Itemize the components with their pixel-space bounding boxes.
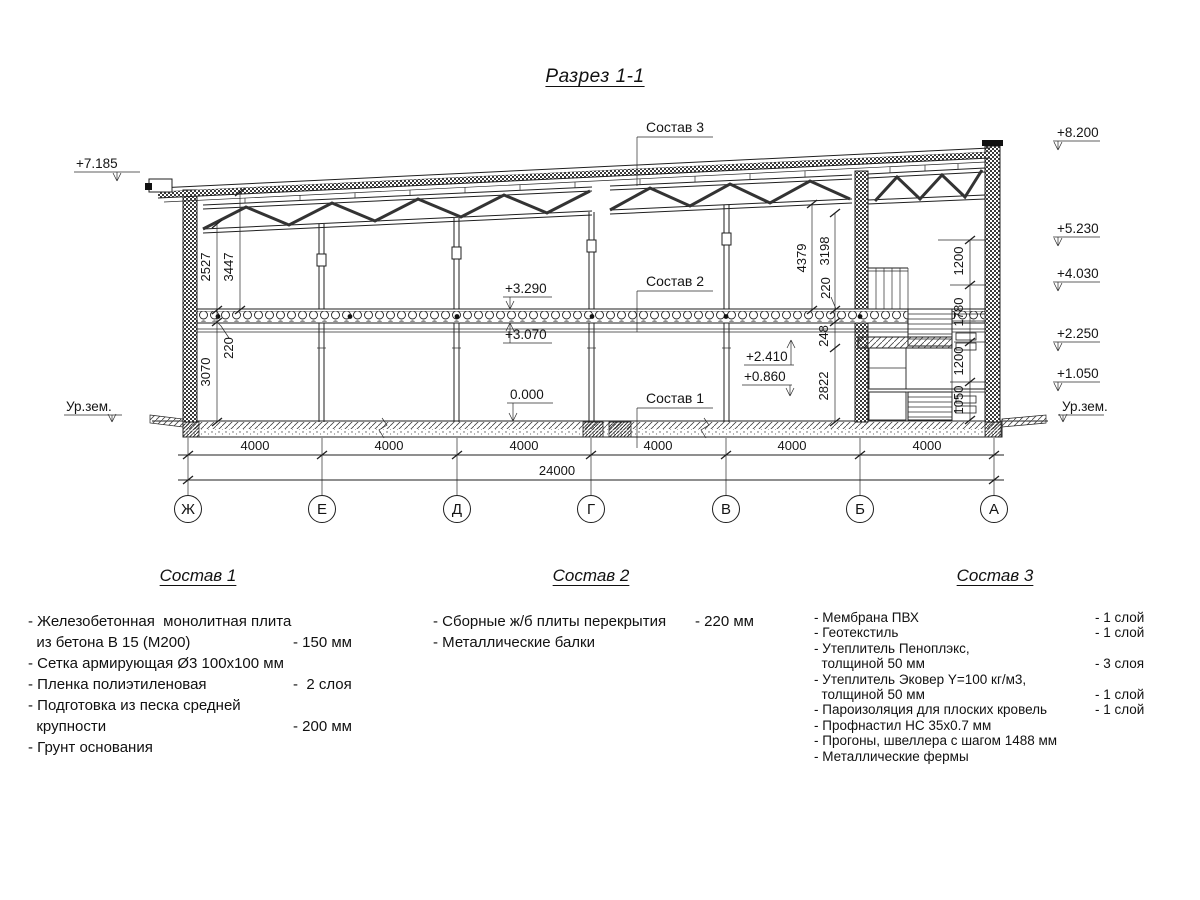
legend-sostav-3: Состав 3 - Мембрана ПВХ- 1 слой - Геотек… [814,566,1176,764]
legend-item-text: - Профнастил НС 35x0.7 мм [814,718,991,733]
legend-item-text: толщиной 50 мм [814,687,925,702]
legend-item-text: - Грунт основания [28,739,153,756]
dim-bay-6: 4000 [913,438,942,453]
legend-sostav-2: Состав 2 - Сборные ж/б плиты перекрытия-… [433,566,749,655]
legend-item: - Металлические фермы [814,749,1176,764]
legend-item: - Сетка армирующая Ø3 100x100 мм [28,655,368,676]
legend-item-value: - 1 слой [1095,625,1144,640]
dim-248: 248 [816,325,831,347]
legend-item-text: - Пленка полиэтиленовая [28,676,207,693]
axis-label-e: Е [317,501,327,518]
dim-3198: 3198 [817,237,832,266]
level-right-1: +8.200 [1057,125,1099,140]
level-left-top: +7.185 [76,156,118,171]
legend-item: - Сборные ж/б плиты перекрытия- 220 мм [433,613,749,634]
level-stair-down: +0.860 [744,369,786,384]
level-right-3: +4.030 [1057,266,1099,281]
dim-3447: 3447 [221,253,236,282]
dim-2527: 2527 [198,253,213,282]
level-right-5: +1.050 [1057,366,1099,381]
legend-item: - Пленка полиэтиленовая- 2 слоя [28,676,368,697]
legend-item-text: - Пароизоляция для плоских кровель [814,702,1047,717]
dim-bay-1: 4000 [241,438,270,453]
level-ground-right: Ур.зем. [1062,399,1108,414]
legend-item-text: - Металлические фермы [814,749,969,764]
level-stair-up: +2.410 [746,349,788,364]
dim-1780: 1780 [951,298,966,327]
legend-item-value: - 220 мм [695,613,754,630]
axis-label-g: Г [587,501,595,518]
legend-item-value: - 200 мм [293,718,352,735]
legend-item: - Утеплитель Эковер Y=100 кг/м3, [814,672,1176,687]
legend-item: - Грунт основания [28,739,368,760]
dim-1200-a: 1200 [951,247,966,276]
legend-item: - Металлические балки [433,634,749,655]
elevation-marks-left: +7.185 Ур.зем. [64,156,140,422]
dim-bay-2: 4000 [375,438,404,453]
legend-item: толщиной 50 мм- 3 слоя [814,656,1176,671]
left-wall [183,190,197,422]
legend-2-title: Состав 2 [433,566,749,586]
legend-3-title: Состав 3 [814,566,1176,586]
legend-item-text: - Утеплитель Эковер Y=100 кг/м3, [814,672,1026,687]
legend-item-text: - Прогоны, швеллера с шагом 1488 мм [814,733,1057,748]
legend-item-text: - Железобетонная монолитная плита [28,613,291,630]
legend-item-text: толщиной 50 мм [814,656,925,671]
dim-2822: 2822 [816,372,831,401]
leader-sostav-3: Состав 3 [646,119,704,135]
axis-label-b: Б [855,501,865,518]
legend-item-text: - Сетка армирующая Ø3 100x100 мм [28,655,284,672]
dim-bay-4: 4000 [644,438,673,453]
legend-item: из бетона В 15 (М200)- 150 мм [28,634,368,655]
legend-item-text: крупности [28,718,106,735]
dimensions-bottom: 4000 4000 4000 4000 4000 4000 24000 [178,438,1004,496]
truss-2 [610,171,852,214]
legend-item: - Пароизоляция для плоских кровель- 1 сл… [814,702,1176,717]
level-floor: 0.000 [510,387,544,402]
legend-item-text: - Утеплитель Пеноплэкс, [814,641,970,656]
dims-left: 2527 3447 220 3070 [198,188,245,426]
leader-sostav-1: Состав 1 [646,390,704,406]
legend-sostav-1: Состав 1 - Железобетонная монолитная пли… [28,566,368,760]
level-right-2: +5.230 [1057,221,1099,236]
leader-sostav-2: Состав 2 [646,273,704,289]
right-wall [982,140,1003,422]
elevation-marks-right: +8.200 +5.230 +4.030 +2.250 +1.050 Ур.зе… [1053,125,1108,422]
legend-item: толщиной 50 мм- 1 слой [814,687,1176,702]
dim-total: 24000 [539,463,575,478]
legend-item-value: - 1 слой [1095,687,1144,702]
legend-item-text: - Металлические балки [433,634,595,651]
dim-bay-5: 4000 [778,438,807,453]
legend-item-value: - 2 слоя [293,676,352,693]
legend-item-value: - 150 мм [293,634,352,651]
dim-bay-3: 4000 [510,438,539,453]
dim-4379: 4379 [794,244,809,273]
legend-item-value: - 3 слоя [1095,656,1144,671]
legend-item: - Профнастил НС 35x0.7 мм [814,718,1176,733]
legend-item-text: - Подготовка из песка средней [28,697,241,714]
axis-label-v: В [721,501,731,518]
axis-bubbles: Ж Е Д Г В Б А [175,496,1008,523]
level-slab-bottom: +3.070 [505,327,547,342]
legend-item-text: из бетона В 15 (М200) [28,634,190,651]
level-ground-left: Ур.зем. [66,399,112,414]
legend-item: крупности- 200 мм [28,718,368,739]
legend-item: - Геотекстиль- 1 слой [814,625,1176,640]
legend-item: - Железобетонная монолитная плита [28,613,368,634]
legend-item: - Подготовка из песка средней [28,697,368,718]
drawing-sheet: Разрез 1-1 [0,0,1200,900]
legend-1-title: Состав 1 [28,566,368,586]
legend-item-value: - 1 слой [1095,610,1144,625]
legend-item-text: - Геотекстиль [814,625,898,640]
legend-item: - Прогоны, швеллера с шагом 1488 мм [814,733,1176,748]
legend-item-value: - 1 слой [1095,702,1144,717]
truss-3 [868,164,985,204]
axis-b-wall [855,171,868,422]
legend-item: - Мембрана ПВХ- 1 слой [814,610,1176,625]
dim-1050: 1050 [951,386,966,415]
axis-label-d: Д [452,501,462,518]
legend-item-text: - Сборные ж/б плиты перекрытия [433,613,666,630]
dim-220-right: 220 [818,277,833,299]
legend-item: - Утеплитель Пеноплэкс, [814,641,1176,656]
dim-3070: 3070 [198,358,213,387]
level-right-4: +2.250 [1057,326,1099,341]
dim-220-left: 220 [221,337,236,359]
axis-label-zh: Ж [181,501,195,518]
page-title: Разрез 1-1 [440,66,750,88]
level-slab-top: +3.290 [505,281,547,296]
dim-1200-b: 1200 [951,347,966,376]
axis-label-a: А [989,501,999,518]
section-drawing: 4000 4000 4000 4000 4000 4000 24000 Ж Е … [0,0,1200,900]
legend-item-text: - Мембрана ПВХ [814,610,919,625]
